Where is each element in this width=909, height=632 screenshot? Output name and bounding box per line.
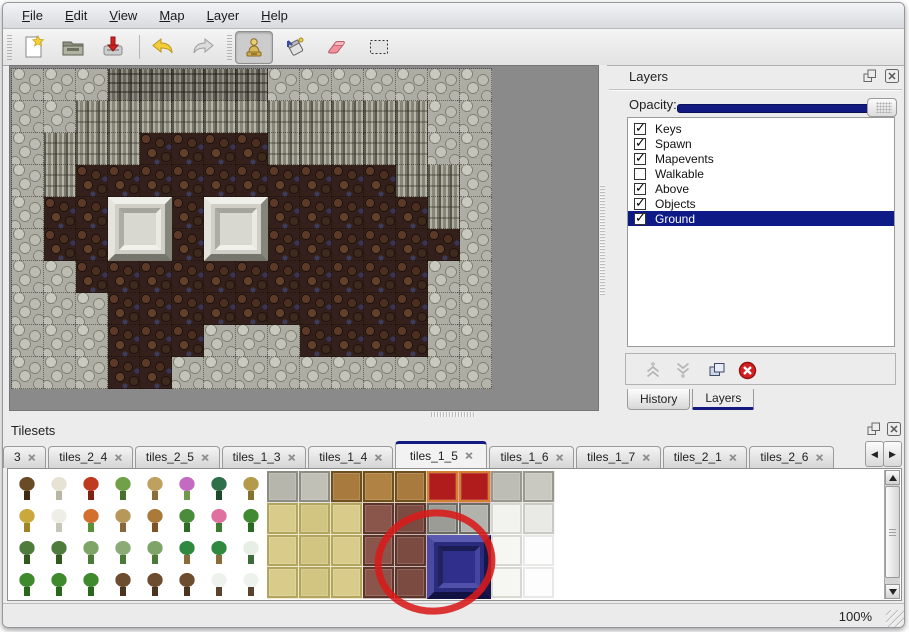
map-tile[interactable] [364,133,396,165]
map-tile[interactable] [204,165,236,197]
tab-layers[interactable]: Layers [692,389,754,410]
layer-label: Walkable [655,167,704,181]
map-tile[interactable] [364,325,396,357]
map-tile[interactable] [76,165,108,197]
tileset-tile[interactable] [75,567,107,599]
tileset-tab-tiles_2_4[interactable]: tiles_2_4× [48,446,133,468]
map-tile[interactable] [364,165,396,197]
opacity-slider-handle[interactable] [867,98,897,117]
map-tile[interactable] [172,357,204,389]
map-tile[interactable] [236,293,268,325]
tab-scroll-right-button[interactable]: ▶ [883,441,902,467]
eraser-icon [324,34,350,60]
map-tile[interactable] [268,357,300,389]
map-tile[interactable] [300,261,332,293]
map-tile[interactable] [364,293,396,325]
map-tile[interactable] [428,293,460,325]
map-tile[interactable] [140,357,172,389]
map-tile[interactable] [76,101,108,133]
map-tile[interactable] [396,325,428,357]
map-tile[interactable] [76,69,108,101]
map-tile[interactable] [396,165,428,197]
map-tile[interactable] [12,293,44,325]
layer-visibility-checkbox[interactable] [634,183,646,195]
map-tile[interactable] [428,101,460,133]
tileset-tile[interactable] [523,503,555,535]
tab-scroll-left-button[interactable]: ◀ [865,441,884,467]
map-tile[interactable] [12,165,44,197]
stone-block-inner [119,208,161,250]
tileset-tile[interactable] [11,503,43,535]
chevron-up-icon [644,361,662,379]
map-tile[interactable] [428,325,460,357]
tileset-tile[interactable] [523,535,555,567]
map-tile[interactable] [236,165,268,197]
map-tile[interactable] [300,325,332,357]
layer-row-objects[interactable]: Objects [628,196,894,211]
layer-row-walkable[interactable]: Walkable [628,166,894,181]
map-tile[interactable] [172,133,204,165]
tileset-tab-tiles_1_3[interactable]: tiles_1_3× [222,446,307,468]
map-tile[interactable] [172,293,204,325]
tileset-tile[interactable] [427,503,459,535]
map-tile[interactable] [44,357,76,389]
map-tile[interactable] [108,357,140,389]
tileset-tab-tiles_1_7[interactable]: tiles_1_7× [576,446,661,468]
map-tile[interactable] [108,69,140,101]
lower-layer-button[interactable] [672,359,694,381]
map-tile[interactable] [172,69,204,101]
map-tile[interactable] [332,101,364,133]
opacity-slider-track[interactable] [677,104,897,113]
map-tile[interactable] [140,69,172,101]
toolbar-grip[interactable] [7,34,12,60]
select-tool-button[interactable] [361,31,397,62]
tab-close-icon[interactable]: × [114,447,122,468]
tab-close-icon[interactable]: × [642,447,650,468]
map-tile[interactable] [76,197,108,229]
map-tile[interactable] [428,197,460,229]
tileset-tile[interactable] [363,503,395,535]
tileset-tile[interactable] [267,567,299,599]
tileset-tile[interactable] [107,567,139,599]
map-tile[interactable] [460,357,492,389]
stamp-tool-button[interactable] [235,31,273,64]
map-tile[interactable] [300,357,332,389]
tileset-tile[interactable] [43,567,75,599]
map-tile[interactable] [396,229,428,261]
tileset-tile[interactable] [267,471,299,503]
map-tile[interactable] [428,229,460,261]
tileset-tab-tiles_2_6[interactable]: tiles_2_6× [749,446,834,468]
tileset-tile[interactable] [299,535,331,567]
layer-row-ground[interactable]: Ground [628,211,894,226]
tileset-tile[interactable] [363,471,395,503]
tileset-tile[interactable] [331,535,363,567]
map-tile[interactable] [332,357,364,389]
tileset-tile[interactable] [203,535,235,567]
layer-visibility-checkbox[interactable] [634,168,646,180]
map-tile[interactable] [332,69,364,101]
map-tile[interactable] [300,293,332,325]
tileset-tile[interactable] [491,471,523,503]
map-tile[interactable] [364,229,396,261]
tileset-tile[interactable] [491,503,523,535]
map-tile[interactable] [428,261,460,293]
map-tile[interactable] [44,197,76,229]
map-tile[interactable] [12,197,44,229]
map-tile[interactable] [268,293,300,325]
menu-item-layer[interactable]: Layer [196,8,251,23]
layer-visibility-checkbox[interactable] [634,198,646,210]
map-tile[interactable] [460,69,492,101]
scroll-down-button[interactable] [885,584,900,599]
map-tile[interactable] [364,357,396,389]
tileset-tile[interactable] [43,535,75,567]
tileset-tile[interactable] [43,503,75,535]
map-tile[interactable] [12,325,44,357]
map-tile[interactable] [44,261,76,293]
tileset-tile[interactable] [395,503,427,535]
layer-visibility-checkbox[interactable] [634,153,646,165]
chevron-down-icon [674,361,692,379]
map-tile[interactable] [12,261,44,293]
map-tile[interactable] [44,293,76,325]
map-tile[interactable] [12,229,44,261]
map-tile[interactable] [12,133,44,165]
map-tile[interactable] [44,229,76,261]
layer-label: Keys [655,122,682,136]
tileset-tile[interactable] [395,567,427,599]
map-tile[interactable] [396,101,428,133]
tileset-tile[interactable] [491,567,523,599]
map-tile[interactable] [300,197,332,229]
vertical-splitter[interactable] [599,65,607,411]
status-bar: 100% [3,603,905,628]
resize-grip[interactable] [886,610,904,628]
map-tile[interactable] [268,165,300,197]
map-tile[interactable] [204,293,236,325]
tileset-tile[interactable] [11,535,43,567]
map-tile[interactable] [12,101,44,133]
map-tile[interactable] [108,293,140,325]
map-tile[interactable] [44,133,76,165]
map-tile[interactable] [332,293,364,325]
map-tile[interactable] [76,229,108,261]
tileset-tile[interactable] [139,535,171,567]
tab-close-icon[interactable]: × [465,444,473,468]
map-tile[interactable] [172,101,204,133]
toolbar [3,29,904,66]
horizontal-splitter[interactable] [3,411,905,419]
map-tile[interactable] [76,293,108,325]
map-tile[interactable] [44,165,76,197]
tileset-tile[interactable] [11,567,43,599]
map-tile[interactable] [236,357,268,389]
map-tile[interactable] [236,69,268,101]
open-file-button[interactable] [55,31,91,62]
map-tile[interactable] [396,133,428,165]
tileset-tab-bar: 3×tiles_2_4×tiles_2_5×tiles_1_3×tiles_1_… [3,441,859,468]
map-tile[interactable] [300,229,332,261]
save-button[interactable] [95,31,131,62]
map-tile[interactable] [12,69,44,101]
map-tile[interactable] [332,229,364,261]
tileset-tile[interactable] [299,503,331,535]
tileset-tab-tiles_1_4[interactable]: tiles_1_4× [308,446,393,468]
eraser-tool-button[interactable] [319,31,355,62]
tileset-grid [11,471,555,599]
fill-tool-button[interactable] [277,31,313,62]
raise-layer-button[interactable] [642,359,664,381]
menu-item-edit[interactable]: Edit [54,8,98,23]
map-tile[interactable] [332,325,364,357]
float-icon [863,69,877,83]
tileset-tile[interactable] [203,471,235,503]
map-tile[interactable] [44,325,76,357]
map-tile[interactable] [428,165,460,197]
tileset-tab-3[interactable]: 3× [3,446,46,468]
map-tile[interactable] [396,69,428,101]
map-tile[interactable] [172,261,204,293]
layer-row-mapevents[interactable]: Mapevents [628,151,894,166]
tileset-tab-tiles_2_1[interactable]: tiles_2_1× [663,446,748,468]
layer-visibility-checkbox[interactable] [634,123,646,135]
map-tile[interactable] [364,261,396,293]
undo-button[interactable] [145,31,181,62]
map-tile[interactable] [300,133,332,165]
map-tile[interactable] [460,101,492,133]
tab-close-icon[interactable]: × [288,447,296,468]
map-tile[interactable] [236,325,268,357]
map-tile[interactable] [396,197,428,229]
map-tile[interactable] [76,325,108,357]
map-tile[interactable] [332,165,364,197]
tab-close-icon[interactable]: × [556,447,564,468]
map-tile[interactable] [108,261,140,293]
map-tile[interactable] [172,197,204,229]
map-tile[interactable] [76,261,108,293]
tab-history[interactable]: History [627,389,690,410]
tileset-tile[interactable] [235,535,267,567]
tileset-tile[interactable] [107,471,139,503]
tileset-tile[interactable] [459,471,491,503]
tileset-tile[interactable] [139,567,171,599]
tileset-tile[interactable] [363,567,395,599]
tileset-tile[interactable] [171,503,203,535]
tab-close-icon[interactable]: × [28,447,36,468]
map-tile[interactable] [428,357,460,389]
map-tile[interactable] [332,197,364,229]
map-tile[interactable] [268,229,300,261]
tab-close-icon[interactable]: × [729,447,737,468]
map-tile[interactable] [460,133,492,165]
close-dock-button[interactable] [885,69,899,83]
tileset-tab-tiles_1_6[interactable]: tiles_1_6× [489,446,574,468]
tileset-tile[interactable] [235,567,267,599]
tileset-tile[interactable] [203,567,235,599]
map-tile[interactable] [364,101,396,133]
map-tile[interactable] [300,101,332,133]
duplicate-layer-button[interactable] [706,359,728,381]
map-tile[interactable] [364,69,396,101]
tileset-tile[interactable] [363,535,395,567]
tileset-tile[interactable] [203,503,235,535]
tileset-tile[interactable] [43,471,75,503]
map-tile[interactable] [76,357,108,389]
map-tile[interactable] [204,133,236,165]
map-tile[interactable] [172,325,204,357]
tileset-tile[interactable] [107,535,139,567]
tileset-tile[interactable] [331,503,363,535]
map-tile[interactable] [76,133,108,165]
tileset-tile[interactable] [331,567,363,599]
map-tile[interactable] [460,165,492,197]
menu-item-view[interactable]: View [98,8,148,23]
map-tile[interactable] [44,101,76,133]
toolbar-grip-2[interactable] [227,34,232,60]
float-dock-button[interactable] [863,69,877,83]
menu-item-help[interactable]: Help [250,8,299,23]
map-canvas[interactable] [11,68,492,389]
tileset-tab-tiles_1_5[interactable]: tiles_1_5× [395,441,488,468]
map-tile[interactable] [364,197,396,229]
map-tile[interactable] [12,357,44,389]
tileset-tile[interactable] [235,471,267,503]
blue-block-tile[interactable] [427,535,491,599]
map-tile[interactable] [204,261,236,293]
map-tile[interactable] [460,293,492,325]
duplicate-icon [708,361,726,379]
layer-visibility-checkbox[interactable] [634,213,646,225]
tab-label: tiles_1_7 [587,447,635,468]
screenshot-page: FileEditViewMapLayerHelp [0,0,909,632]
tileset-tile[interactable] [139,471,171,503]
layer-row-keys[interactable]: Keys [628,121,894,136]
map-tile[interactable] [460,325,492,357]
map-tile[interactable] [300,165,332,197]
map-tile[interactable] [140,165,172,197]
map-tile[interactable] [236,261,268,293]
splitter-grip [600,185,605,295]
map-tile[interactable] [268,101,300,133]
tab-label: tiles_1_4 [319,447,367,468]
tileset-tile[interactable] [523,471,555,503]
tileset-tile[interactable] [395,471,427,503]
map-tile[interactable] [108,101,140,133]
map-tile[interactable] [108,133,140,165]
layer-visibility-checkbox[interactable] [634,138,646,150]
divider [609,89,902,90]
map-tile[interactable] [108,325,140,357]
tileset-tile[interactable] [299,471,331,503]
map-tile[interactable] [236,101,268,133]
map-tile[interactable] [428,133,460,165]
map-tile[interactable] [268,325,300,357]
map-tile[interactable] [332,261,364,293]
tileset-tile[interactable] [267,503,299,535]
map-tile[interactable] [236,133,268,165]
map-tile[interactable] [268,69,300,101]
map-tile[interactable] [396,261,428,293]
map-tile[interactable] [204,357,236,389]
tileset-tile[interactable] [171,471,203,503]
map-tile[interactable] [140,133,172,165]
map-tile[interactable] [108,165,140,197]
new-file-button[interactable] [15,31,51,62]
map-tile[interactable] [460,261,492,293]
map-tile[interactable] [396,293,428,325]
float-dock-button[interactable] [867,422,881,436]
tileset-tile[interactable] [75,503,107,535]
tileset-tile[interactable] [523,567,555,599]
map-tile[interactable] [268,197,300,229]
layer-row-spawn[interactable]: Spawn [628,136,894,151]
tileset-tile[interactable] [427,471,459,503]
map-tile[interactable] [204,325,236,357]
map-tile[interactable] [172,165,204,197]
tileset-tile[interactable] [395,535,427,567]
tileset-tile[interactable] [459,503,491,535]
tab-close-icon[interactable]: × [374,447,382,468]
map-tile[interactable] [172,229,204,261]
tileset-tile[interactable] [11,471,43,503]
tileset-tile[interactable] [299,567,331,599]
tileset-tile[interactable] [171,535,203,567]
map-tile[interactable] [268,261,300,293]
tileset-tab-tiles_2_5[interactable]: tiles_2_5× [135,446,220,468]
map-tile[interactable] [140,293,172,325]
tab-label: tiles_2_6 [760,447,808,468]
map-tile[interactable] [140,325,172,357]
redo-button[interactable] [185,31,221,62]
scroll-up-button[interactable] [885,470,900,485]
tileset-tile[interactable] [75,535,107,567]
selection-rectangle-icon [366,34,392,60]
map-tile[interactable] [460,197,492,229]
scrollbar-thumb[interactable] [885,486,900,578]
tileset-tile[interactable] [235,503,267,535]
tileset-tile[interactable] [75,471,107,503]
tab-close-icon[interactable]: × [201,447,209,468]
map-tile[interactable] [204,69,236,101]
map-tile[interactable] [332,133,364,165]
tileset-tile[interactable] [107,503,139,535]
map-tile[interactable] [44,69,76,101]
tileset-scrollbar[interactable] [884,470,900,599]
layer-row-above[interactable]: Above [628,181,894,196]
tileset-tile[interactable] [267,535,299,567]
menu-item-map[interactable]: Map [148,8,195,23]
map-tile[interactable] [268,133,300,165]
zoom-level: 100% [839,609,872,624]
tileset-tile[interactable] [139,503,171,535]
map-tile[interactable] [460,229,492,261]
menu-item-file[interactable]: File [11,8,54,23]
close-dock-button[interactable] [887,422,901,436]
tab-close-icon[interactable]: × [815,447,823,468]
map-tile[interactable] [396,357,428,389]
tileset-tile[interactable] [331,471,363,503]
tileset-tile[interactable] [491,535,523,567]
map-tile[interactable] [140,261,172,293]
map-tile[interactable] [428,69,460,101]
delete-layer-button[interactable] [736,359,758,381]
tileset-tile[interactable] [171,567,203,599]
map-tile[interactable] [300,69,332,101]
map-tile[interactable] [204,101,236,133]
map-tile[interactable] [140,101,172,133]
